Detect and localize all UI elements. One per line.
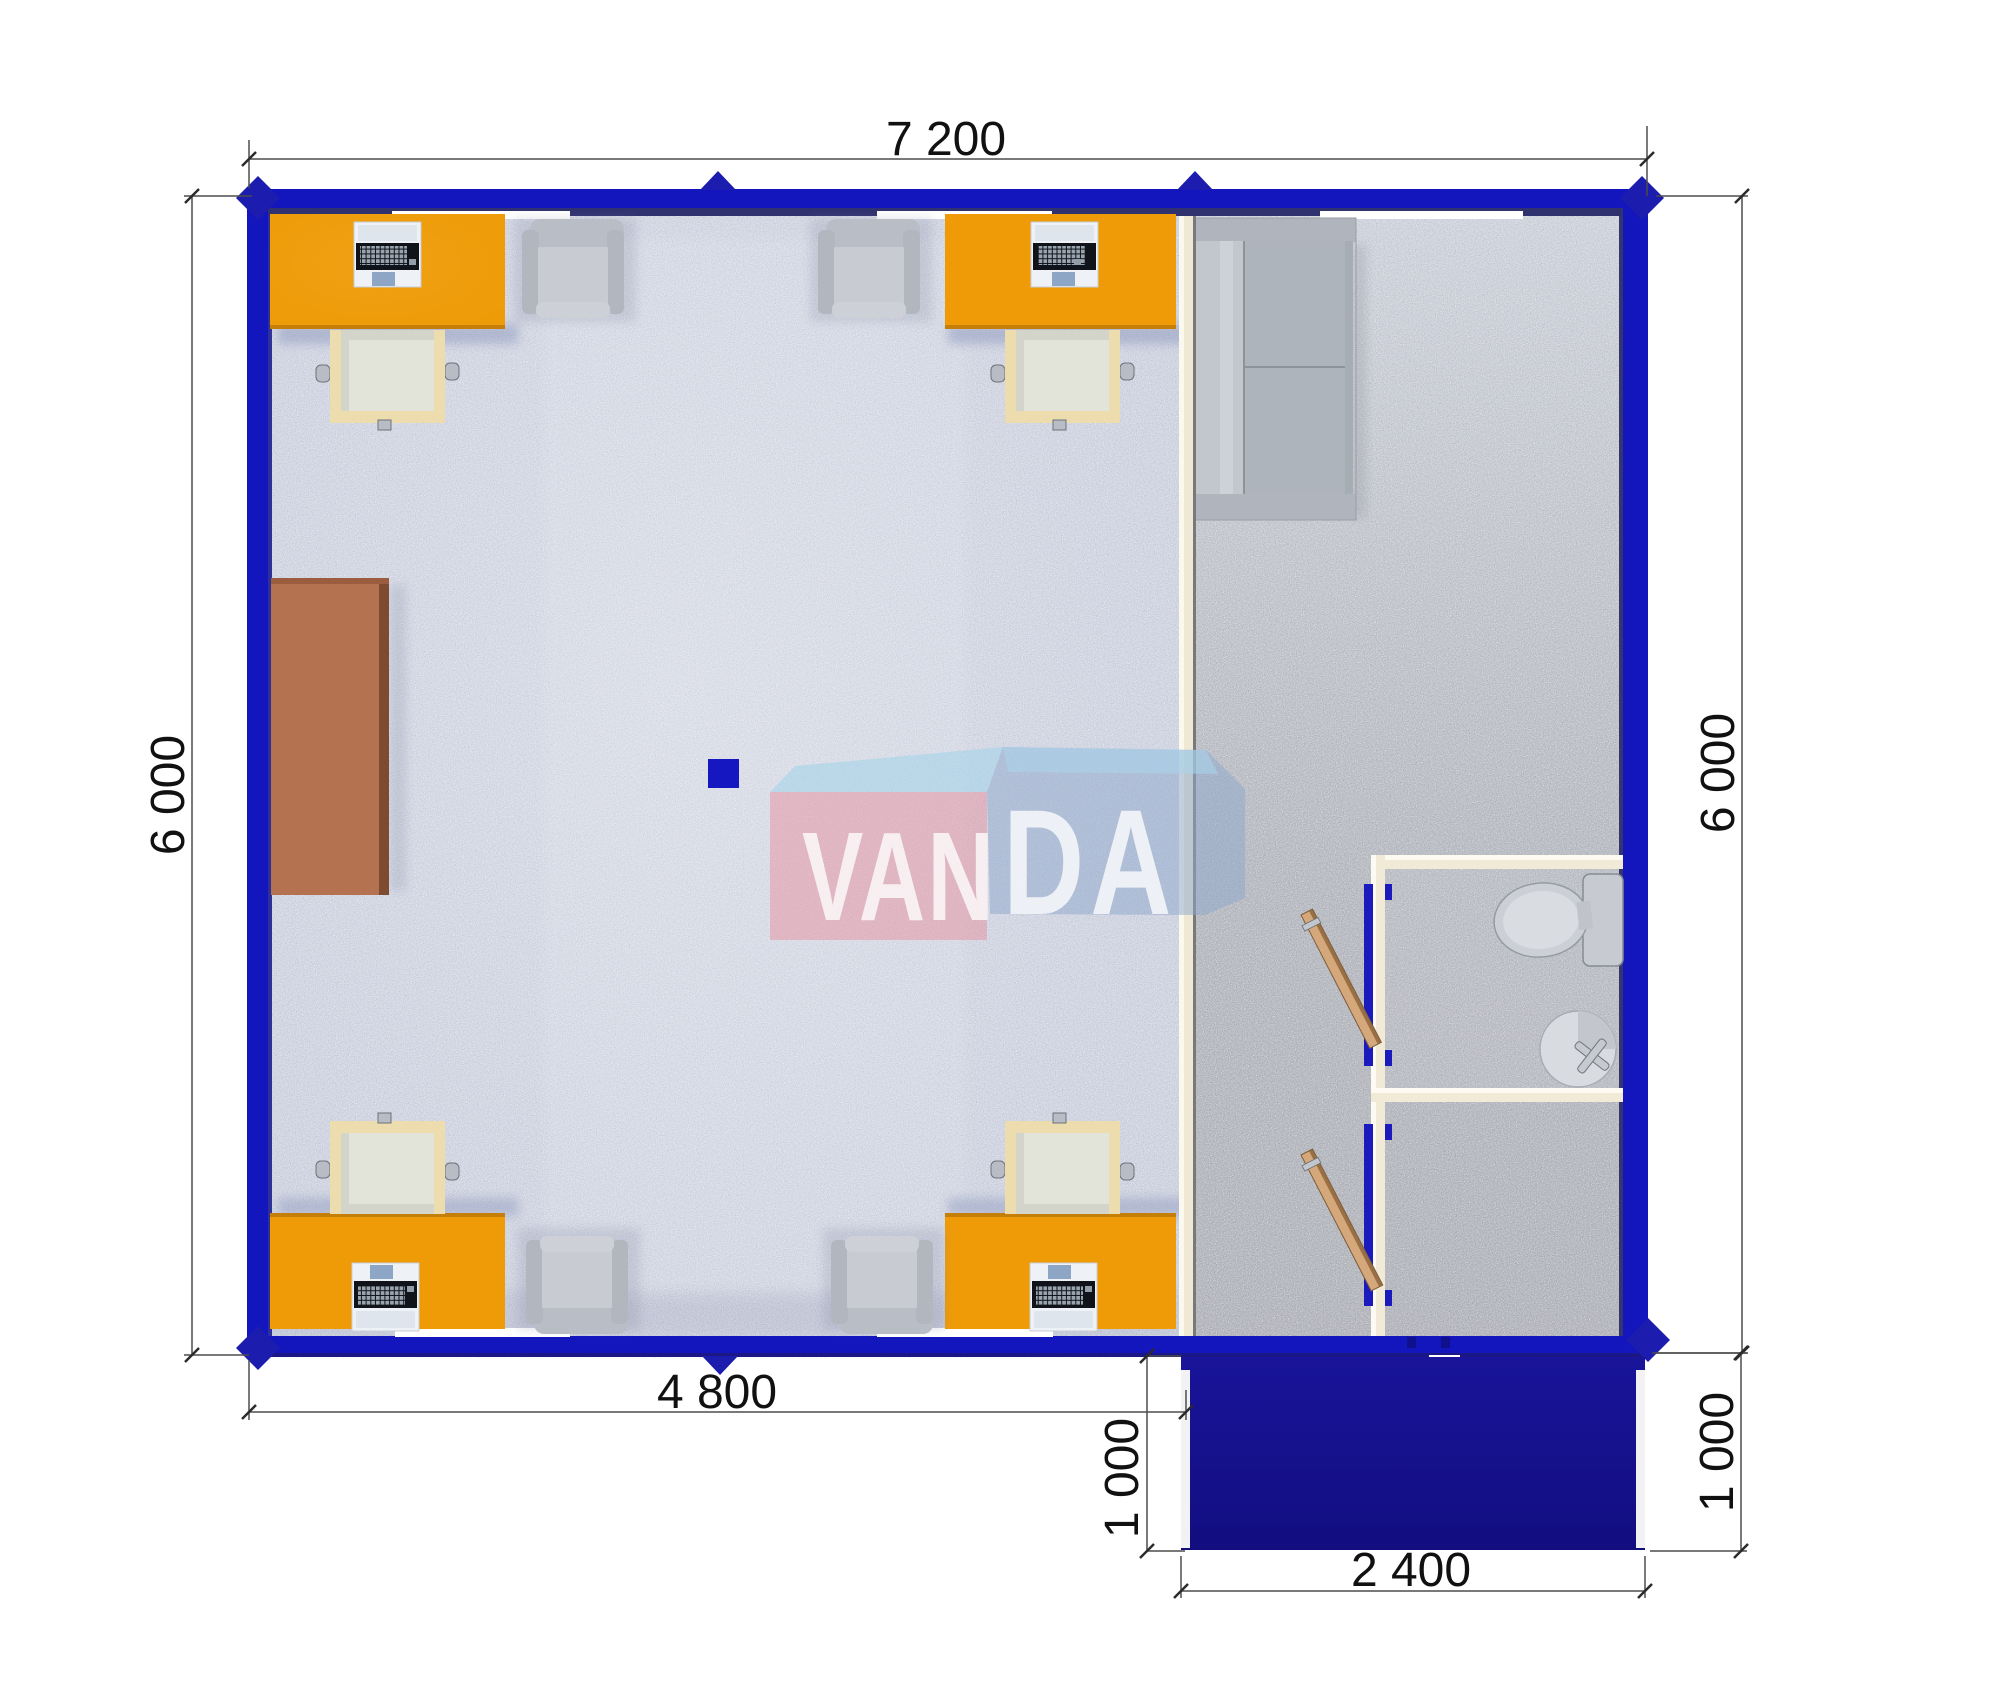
svg-text:6 000: 6 000: [1692, 713, 1745, 833]
svg-text:DA: DA: [1003, 779, 1177, 946]
svg-text:2 400: 2 400: [1351, 1544, 1471, 1597]
svg-text:7 200: 7 200: [886, 113, 1006, 166]
svg-text:4 800: 4 800: [657, 1366, 777, 1419]
svg-text:1 000: 1 000: [1691, 1392, 1744, 1512]
svg-text:1 000: 1 000: [1096, 1418, 1149, 1538]
svg-text:6 000: 6 000: [142, 735, 195, 855]
svg-text:VAN: VAN: [802, 807, 996, 947]
